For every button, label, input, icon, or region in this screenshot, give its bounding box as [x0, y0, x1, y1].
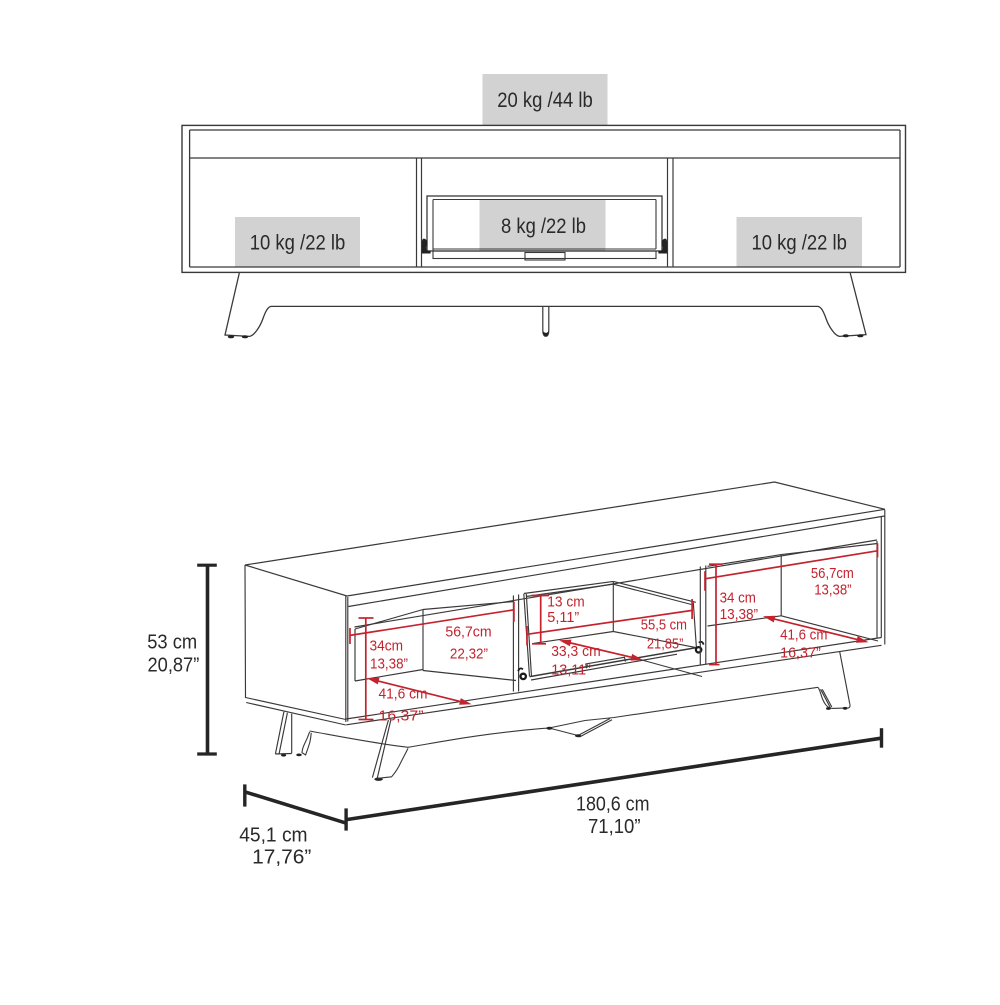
svg-text:22,32”: 22,32” [450, 646, 488, 663]
svg-text:41,6 cm: 41,6 cm [379, 686, 428, 703]
svg-text:53 cm: 53 cm [147, 632, 197, 654]
svg-text:34 cm: 34 cm [720, 589, 756, 606]
svg-text:13,38”: 13,38” [370, 656, 408, 673]
svg-text:56,7cm: 56,7cm [811, 565, 854, 582]
svg-text:55,5 cm: 55,5 cm [641, 617, 687, 634]
svg-text:71,10”: 71,10” [588, 816, 641, 838]
svg-text:180,6 cm: 180,6 cm [576, 794, 650, 816]
svg-text:34cm: 34cm [370, 638, 404, 655]
svg-text:41,6 cm: 41,6 cm [780, 627, 827, 644]
svg-text:16,37”: 16,37” [379, 708, 424, 725]
svg-text:16,37”: 16,37” [780, 644, 821, 661]
svg-text:21,85”: 21,85” [647, 636, 684, 653]
svg-text:33,3 cm: 33,3 cm [551, 643, 601, 660]
svg-text:13,38”: 13,38” [814, 582, 851, 599]
svg-text:17,76”: 17,76” [252, 847, 311, 869]
svg-text:8 kg /22 lb: 8 kg /22 lb [501, 215, 586, 238]
svg-text:45,1 cm: 45,1 cm [239, 824, 307, 846]
svg-text:10 kg /22 lb: 10 kg /22 lb [250, 231, 346, 254]
svg-text:5,11”: 5,11” [547, 609, 579, 626]
svg-text:10 kg /22 lb: 10 kg /22 lb [751, 232, 847, 255]
svg-text:20,87”: 20,87” [148, 655, 200, 677]
svg-text:56,7cm: 56,7cm [445, 624, 491, 641]
svg-text:13,11”: 13,11” [551, 661, 591, 678]
svg-text:13,38”: 13,38” [720, 606, 759, 623]
svg-text:20 kg /44 lb: 20 kg /44 lb [497, 89, 593, 112]
svg-text:13 cm: 13 cm [547, 594, 584, 611]
